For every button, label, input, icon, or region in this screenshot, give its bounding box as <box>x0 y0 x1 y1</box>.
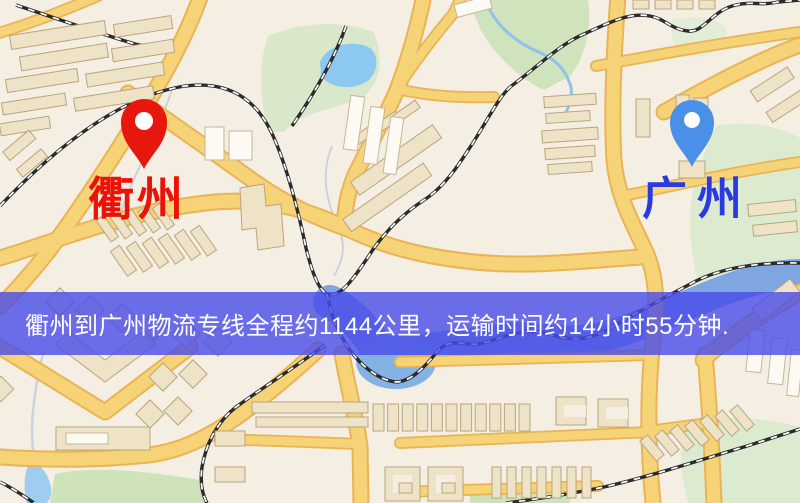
map-background <box>0 0 800 503</box>
route-info-text: 衢州到广州物流专线全程约1144公里，运输时间约14小时55分钟. <box>0 306 729 341</box>
origin-pin-hole <box>135 112 153 130</box>
destination-city-label: 广州 <box>642 176 752 221</box>
route-info-banner: 衢州到广州物流专线全程约1144公里，运输时间约14小时55分钟. <box>0 292 800 355</box>
logistics-route-map-image: 衢州 广州 衢州到广州物流专线全程约1144公里，运输时间约14小时55分钟. <box>0 0 800 503</box>
destination-pin-hole <box>684 112 700 128</box>
origin-city-label: 衢州 <box>88 176 186 222</box>
